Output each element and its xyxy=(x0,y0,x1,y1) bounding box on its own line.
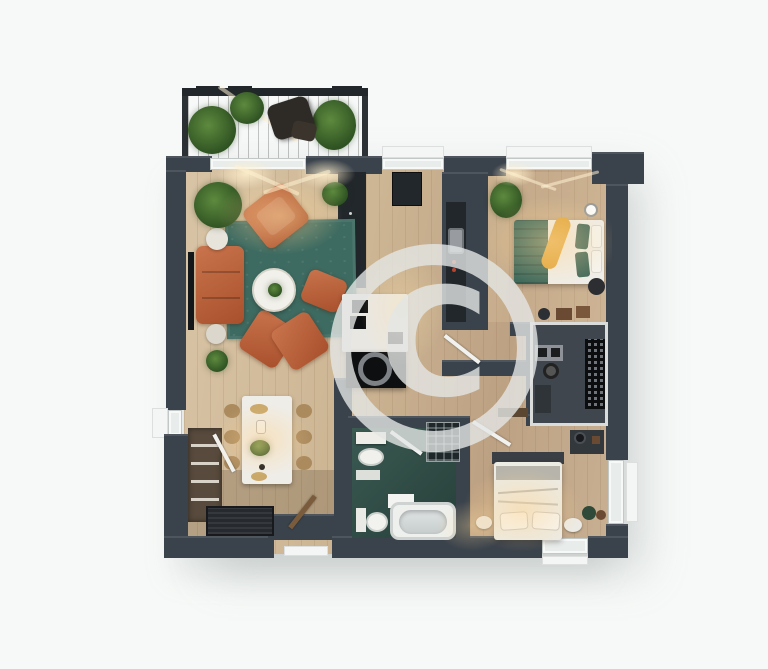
island-sink xyxy=(388,332,403,344)
toilet-bowl xyxy=(366,512,388,532)
toilet-tank xyxy=(356,508,366,532)
balcony-slider-window xyxy=(210,158,306,170)
entry-recess-wall xyxy=(268,514,340,540)
walk-in-closet xyxy=(530,322,608,426)
shelf-box xyxy=(538,348,547,357)
wardrobe-rack xyxy=(585,339,605,409)
bathroom-vanity xyxy=(356,432,386,444)
shelf-line xyxy=(191,480,219,483)
teal-pillow xyxy=(575,223,591,249)
kitchen-counter-block xyxy=(442,172,488,330)
storage-box xyxy=(576,306,590,318)
bedroom-1-bed xyxy=(514,220,604,284)
dining-table xyxy=(242,396,292,484)
bedroom-2-bed xyxy=(494,462,562,540)
storage-box xyxy=(556,308,572,320)
window-sill xyxy=(626,462,638,522)
wall-pillar xyxy=(592,152,644,184)
balcony-plant xyxy=(230,92,264,124)
bedroom-2-window xyxy=(542,538,588,554)
wall-clock xyxy=(584,203,598,217)
kitchen-window xyxy=(382,158,444,170)
stove-knob xyxy=(452,268,456,272)
decor-bowl xyxy=(538,308,550,320)
floor-plant xyxy=(206,350,228,372)
nightstand xyxy=(476,516,492,529)
cabinet-handle xyxy=(349,212,352,215)
bowl xyxy=(259,464,265,470)
coffee-table-plant xyxy=(268,283,282,297)
railing-post xyxy=(196,86,220,95)
kitchen-island-black xyxy=(346,352,406,388)
side-table xyxy=(206,228,228,250)
cooktop xyxy=(350,316,366,329)
white-pillow xyxy=(591,250,602,273)
tv-unit xyxy=(188,252,194,330)
stove-knob xyxy=(452,260,456,264)
floor-plant xyxy=(322,182,348,206)
shelf-line xyxy=(191,498,219,501)
walk-in-shower xyxy=(426,422,460,462)
counter-top xyxy=(446,202,466,322)
kitchen-island-white xyxy=(342,294,408,352)
side-table xyxy=(206,324,226,344)
bedroom-2-side-window xyxy=(608,460,624,524)
table-lamp xyxy=(574,432,586,444)
shelf-line xyxy=(191,444,219,447)
pillow xyxy=(499,511,528,531)
duvet-fold xyxy=(498,500,558,505)
bathtub-basin xyxy=(399,510,447,534)
white-pillow xyxy=(591,225,602,248)
window-sill xyxy=(506,146,592,158)
shelf-box xyxy=(551,348,560,357)
sofa-seam xyxy=(202,297,240,299)
dining-chair xyxy=(296,456,312,470)
closet-shelf xyxy=(535,345,563,361)
console-table xyxy=(498,408,528,417)
carafe xyxy=(256,420,266,434)
bedroom-1-window xyxy=(506,158,592,170)
dining-chair xyxy=(224,404,240,418)
entrance-doormat xyxy=(206,506,274,536)
plate xyxy=(250,404,268,414)
coiled-item xyxy=(543,363,559,379)
window-sill xyxy=(542,556,588,565)
teal-pillow xyxy=(575,251,591,277)
counter-sink xyxy=(448,228,464,254)
balcony-plant xyxy=(188,106,236,154)
dining-chair xyxy=(296,404,312,418)
wash-basin xyxy=(358,448,384,466)
closet-cabinet xyxy=(535,385,551,413)
wall-bottom xyxy=(588,536,628,558)
floor-plant xyxy=(194,182,242,228)
bedside-table xyxy=(588,278,605,295)
dining-chair xyxy=(224,430,240,444)
window-sill xyxy=(382,146,444,158)
fridge xyxy=(392,172,422,206)
duvet-fold xyxy=(498,488,558,494)
balcony-plant xyxy=(312,100,356,150)
centerpiece-plant xyxy=(250,440,270,456)
pillow xyxy=(531,511,560,531)
sofa xyxy=(196,246,244,324)
dresser xyxy=(570,430,604,454)
bedroom-1-plant xyxy=(490,182,522,218)
hallway-wall xyxy=(442,360,534,376)
wall-bottom xyxy=(164,536,274,558)
coffee-table xyxy=(252,268,296,312)
folded-blanket xyxy=(496,466,560,480)
living-room-side-window xyxy=(168,410,182,436)
nightstand xyxy=(564,518,582,532)
floor-plan-render: C xyxy=(0,0,768,669)
bathroom-shelf xyxy=(356,470,380,480)
plant-pot xyxy=(596,510,606,520)
cooktop xyxy=(352,300,368,313)
living-bath-divider-wall xyxy=(334,378,352,536)
wall-right xyxy=(606,184,628,460)
plate xyxy=(251,472,267,481)
shelf-line xyxy=(191,462,219,465)
decor-item xyxy=(592,436,600,444)
potted-plant xyxy=(582,506,596,520)
railing-post xyxy=(332,86,362,95)
dining-chair xyxy=(296,430,312,444)
armchair-seam xyxy=(255,195,297,237)
entry-step xyxy=(284,546,328,556)
bathtub xyxy=(390,502,456,540)
sofa-seam xyxy=(202,271,240,273)
wall-left xyxy=(166,170,186,410)
round-hood xyxy=(358,352,392,386)
